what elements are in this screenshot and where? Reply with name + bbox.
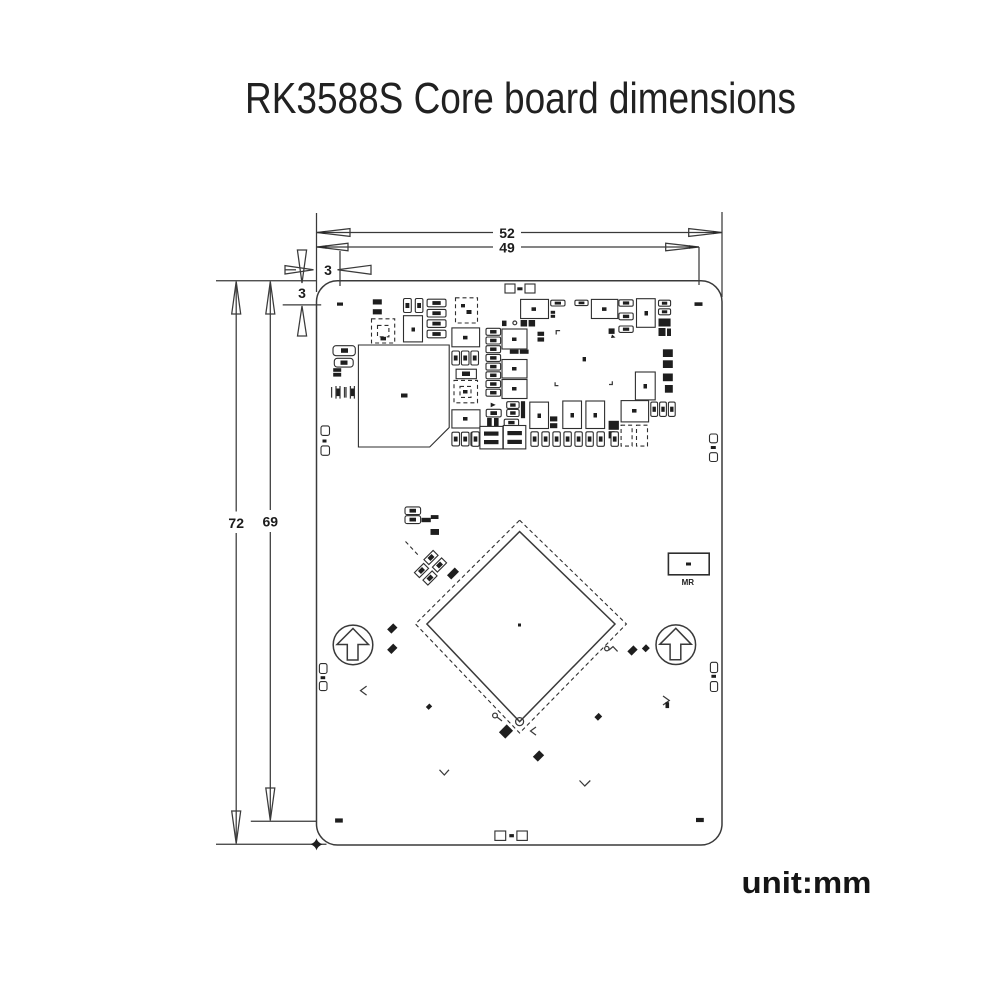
svg-text:3: 3 xyxy=(298,285,306,301)
svg-text:72: 72 xyxy=(228,515,244,531)
svg-text:RK3588S Core board dimensions: RK3588S Core board dimensions xyxy=(245,74,796,123)
svg-text:69: 69 xyxy=(263,514,279,530)
svg-text:49: 49 xyxy=(499,240,515,256)
svg-text:unit:mm: unit:mm xyxy=(742,865,872,900)
svg-text:3: 3 xyxy=(324,262,332,278)
svg-text:MR: MR xyxy=(682,578,695,587)
